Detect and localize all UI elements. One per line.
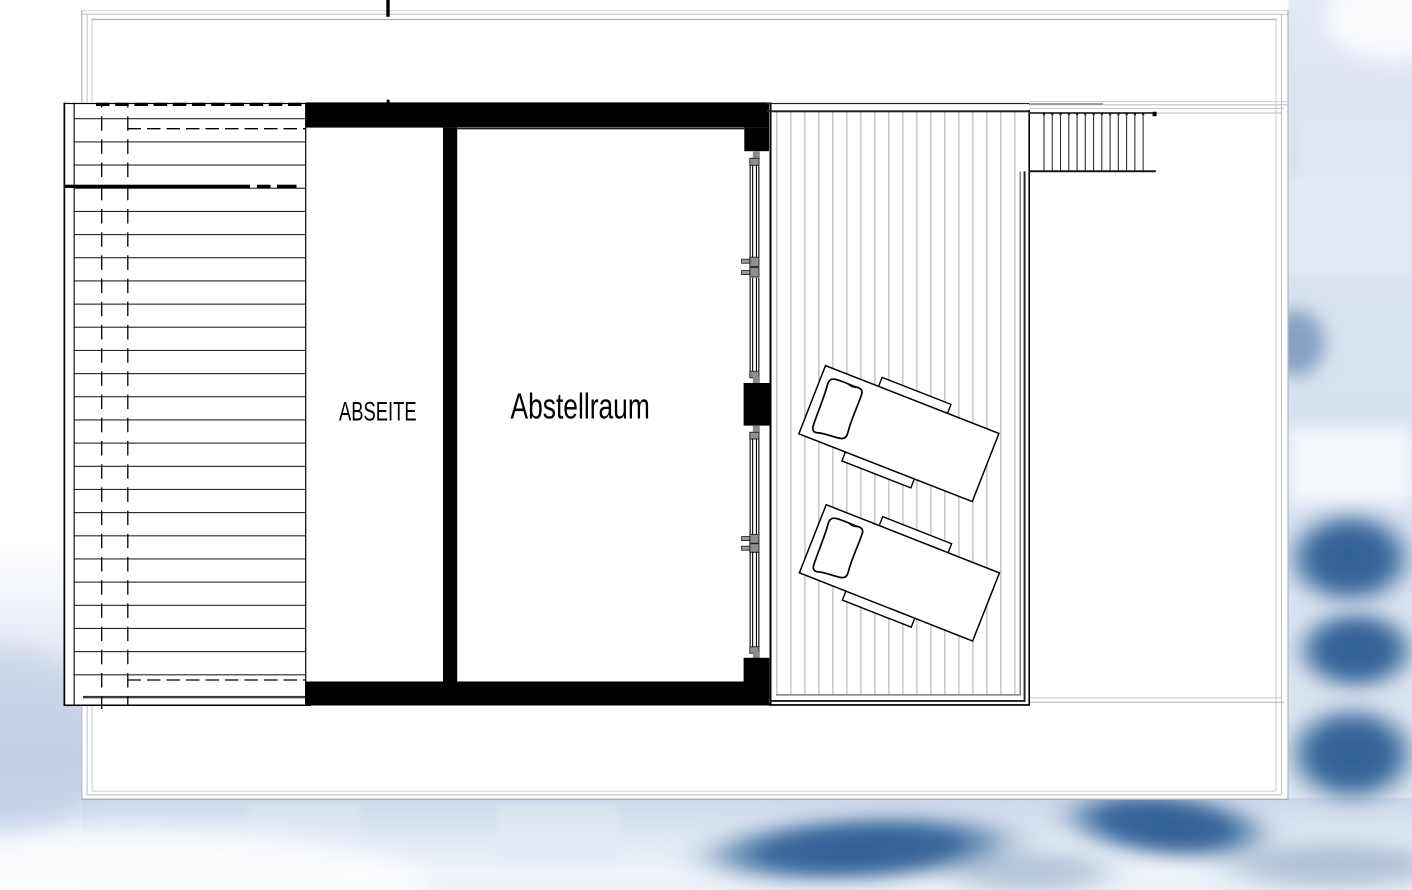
svg-text:Abstellraum: Abstellraum xyxy=(511,386,650,426)
svg-text:ABSEITE: ABSEITE xyxy=(339,396,417,426)
